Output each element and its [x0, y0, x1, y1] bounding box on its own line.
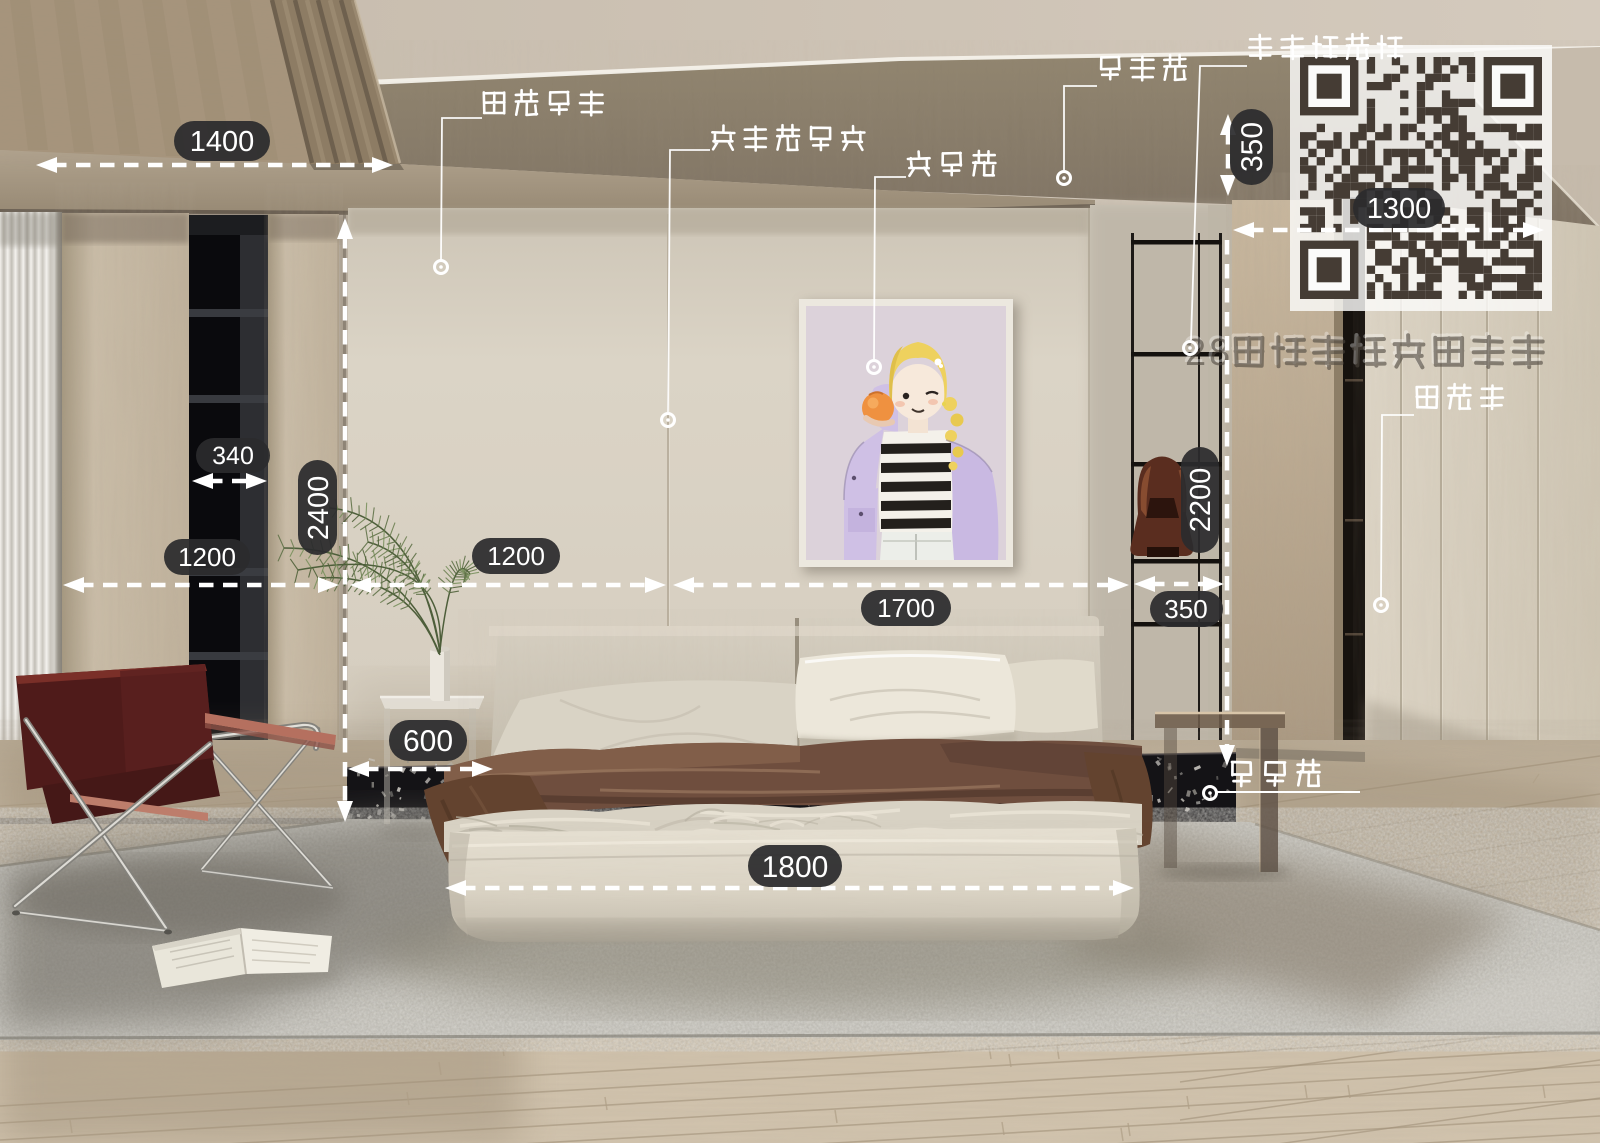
svg-text:1200: 1200 [178, 542, 236, 572]
svg-text:350: 350 [1164, 594, 1207, 624]
svg-text:2200: 2200 [1185, 468, 1217, 533]
svg-text:340: 340 [212, 442, 254, 470]
svg-text:600: 600 [403, 725, 453, 758]
svg-text:2400: 2400 [303, 476, 335, 541]
svg-text:350: 350 [1236, 122, 1269, 172]
svg-text:1400: 1400 [190, 126, 255, 158]
svg-text:1300: 1300 [1367, 193, 1432, 225]
svg-text:1700: 1700 [877, 593, 935, 623]
svg-text:1200: 1200 [487, 541, 545, 571]
svg-text:1800: 1800 [762, 851, 829, 884]
